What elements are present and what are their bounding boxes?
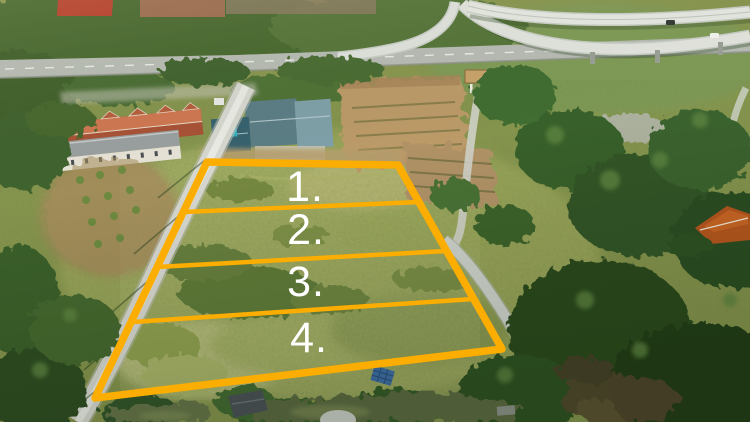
aerial-photo: 1. 2. 3. 4. bbox=[0, 0, 750, 422]
plot-label-3: 3. bbox=[287, 258, 325, 306]
screenshot-root: 1. 2. 3. 4. bbox=[0, 0, 750, 422]
plot-label-1: 1. bbox=[286, 163, 324, 211]
plot-label-2: 2. bbox=[287, 206, 325, 254]
plot-labels: 1. 2. 3. 4. bbox=[286, 163, 328, 362]
plot-label-4: 4. bbox=[290, 314, 328, 362]
